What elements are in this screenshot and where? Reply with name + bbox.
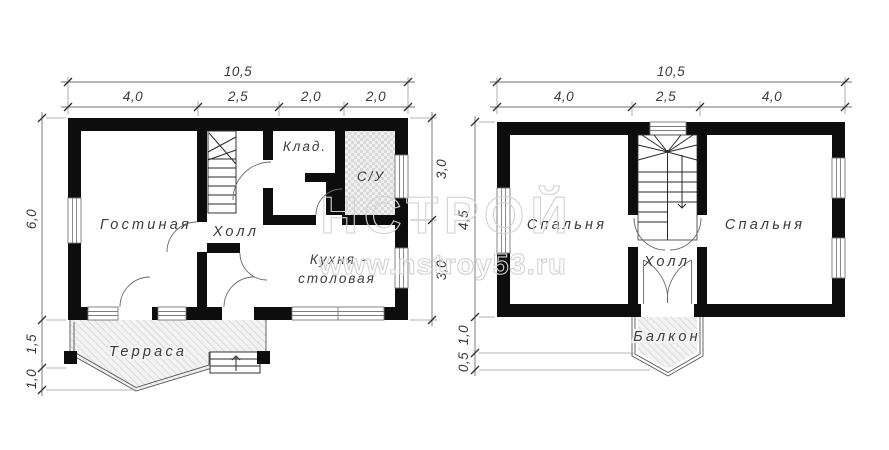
door-opening-living-hall [197,222,207,252]
door-opening-vestibule-terrace [222,307,254,320]
wall-vestibule-top [207,243,240,253]
door-arc-vestibule-terrace [224,277,254,307]
dim-f1-right-upper: 3,0 [434,159,449,179]
window-living-bottom-2 [158,307,186,320]
door-opening-storage [263,160,273,188]
window-bedroom-right-2 [832,238,845,278]
dim-f1-height: 6,0 [24,209,39,229]
staircase-floor1 [208,131,236,213]
terrace-post-right [257,351,270,364]
terrace-steps [210,352,260,373]
room-label-living: Гостиная [100,217,192,233]
floorplan-drawing: Гостиная Холл Клад. С/У Кухня - столовая… [0,0,889,450]
door-opening-living-terrace [118,307,152,320]
watermark-url: www.nstroy53.ru [318,249,567,281]
window-kitchen-bottom [292,307,384,320]
dim-f1-seg4: 2,0 [365,89,386,104]
floorplan-canvas: Гостиная Холл Клад. С/У Кухня - столовая… [0,0,889,450]
door-arc-living-terrace [120,277,150,307]
terrace-post-left [64,351,77,364]
window-bedroom-right-1 [832,158,845,198]
dim-f1-terrace-point: 1,0 [24,369,39,389]
dim-f2-balcony-point: 0,5 [456,352,471,372]
dim-f1-terrace-depth: 1,5 [24,334,39,354]
room-label-terrace: Терраса [109,344,187,360]
floor2-dimensions-top: 10,5 4,0 2,5 4,0 [490,64,852,116]
room-label-hall-f1: Холл [212,224,259,240]
door-arc-vestibule-kitchen [240,253,267,280]
room-label-storage: Клад. [283,139,327,154]
dim-f2-balcony-depth: 1,0 [456,325,471,345]
window-living-left [68,198,81,243]
wall-living-hall [197,131,207,307]
dim-f1-seg1: 4,0 [123,89,143,104]
watermark: НСТРОЙ www.nstroy53.ru [318,186,574,281]
wall-right-f2 [832,122,845,317]
floor2-dimensions-left: 4,5 1,0 0,5 [456,116,650,376]
dim-f1-seg2: 2,5 [227,89,248,104]
room-label-bathroom: С/У [357,169,385,184]
staircase-floor2 [638,135,697,240]
watermark-brand: НСТРОЙ [320,186,573,245]
window-living-bottom-1 [88,307,118,320]
window-stairs-top [650,122,686,135]
room-label-balcony: Балкон [633,329,701,345]
dim-f2-total: 10,5 [657,64,685,79]
floor1-dimensions-top: 10,5 4,0 2,5 2,0 2,0 [61,64,415,116]
wall-storage-nub [305,173,335,182]
door-opening-balcony [641,304,694,317]
dim-f2-seg3: 4,0 [762,89,782,104]
room-label-bedroom-right: Спальня [725,217,805,233]
dim-f1-total: 10,5 [224,64,252,79]
dim-f2-seg1: 4,0 [554,89,574,104]
dim-f2-seg2: 2,5 [655,89,676,104]
wall-top [68,118,408,131]
dim-f1-seg3: 2,0 [300,89,321,104]
room-label-hall-f2: Холл [643,254,690,270]
